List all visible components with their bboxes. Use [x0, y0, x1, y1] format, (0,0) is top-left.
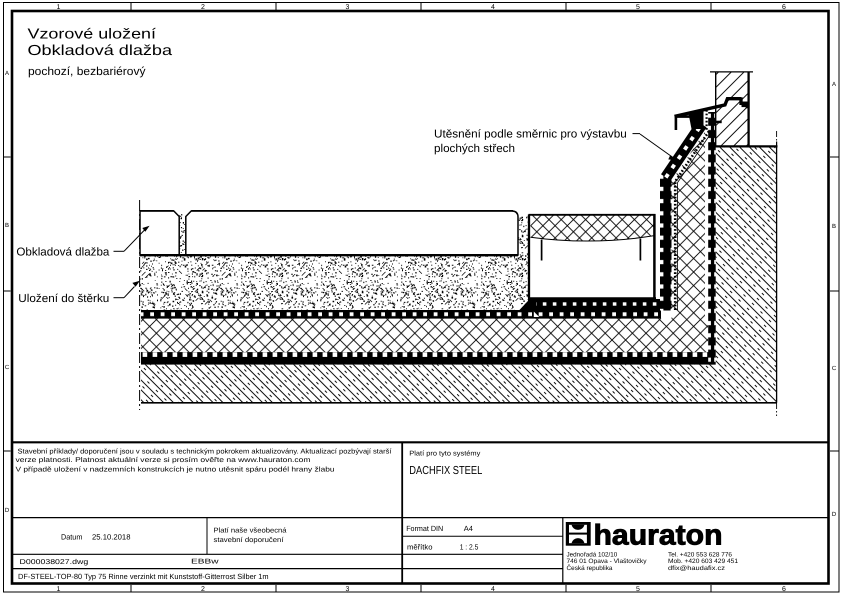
svg-text:D: D — [832, 511, 837, 518]
svg-text:5: 5 — [636, 4, 640, 11]
svg-text:Česká republika: Česká republika — [567, 564, 614, 572]
svg-text:25.10.2018: 25.10.2018 — [92, 533, 131, 542]
svg-text:Obkladová dlažba: Obkladová dlažba — [16, 246, 110, 258]
svg-text:hauraton: hauraton — [594, 520, 723, 552]
svg-text:3: 3 — [346, 4, 350, 11]
svg-text:1: 1 — [57, 4, 61, 11]
svg-text:6: 6 — [782, 4, 786, 11]
svg-text:stavební doporučení: stavební doporučení — [214, 536, 284, 544]
svg-text:1 : 2.5: 1 : 2.5 — [460, 543, 479, 552]
svg-text:plochých střech: plochých střech — [434, 143, 515, 155]
svg-text:B: B — [5, 222, 9, 229]
svg-text:měřítko: měřítko — [407, 542, 433, 551]
svg-text:Utěsnění podle směrnic pro výs: Utěsnění podle směrnic pro výstavbu — [434, 129, 627, 141]
svg-text:Vzorové uložení: Vzorové uložení — [28, 27, 157, 43]
svg-text:Format DIN: Format DIN — [406, 524, 443, 533]
svg-text:pochozí, bezbariérový: pochozí, bezbariérový — [28, 66, 146, 78]
svg-text:Platí naše všeobecná: Platí naše všeobecná — [214, 527, 287, 535]
svg-text:2: 2 — [201, 586, 205, 593]
svg-text:4: 4 — [491, 586, 495, 593]
svg-text:A: A — [832, 81, 836, 88]
svg-text:6: 6 — [782, 586, 786, 593]
svg-text:Obkladová dlažba: Obkladová dlažba — [28, 43, 174, 59]
svg-text:C: C — [832, 365, 837, 372]
svg-text:DACHFIX STEEL: DACHFIX STEEL — [409, 464, 482, 477]
svg-text:C: C — [5, 364, 10, 371]
svg-text:2: 2 — [201, 4, 205, 11]
svg-text:DF-STEEL-TOP-80 Typ 75 Rinne v: DF-STEEL-TOP-80 Typ 75 Rinne verzinkt mi… — [18, 572, 269, 581]
svg-text:V případě uložení v nadzemních: V případě uložení v nadzemních konstrukc… — [16, 466, 335, 474]
svg-text:4: 4 — [491, 4, 495, 11]
svg-text:Mob. +420 603 429 451: Mob. +420 603 429 451 — [668, 558, 739, 565]
svg-text:Datum: Datum — [61, 533, 82, 542]
svg-text:dfix@haudafix.cz: dfix@haudafix.cz — [668, 565, 725, 572]
svg-text:3: 3 — [346, 586, 350, 593]
svg-text:EBBw: EBBw — [191, 558, 220, 565]
svg-text:B: B — [832, 223, 836, 230]
svg-text:1: 1 — [57, 586, 61, 593]
svg-text:A: A — [5, 70, 9, 77]
svg-text:A4: A4 — [464, 524, 473, 533]
svg-text:746 01 Opava - Vlaštovičky: 746 01 Opava - Vlaštovičky — [567, 558, 648, 565]
svg-text:verze platnosti. Platnost aktu: verze platnosti. Platnost aktuální verze… — [16, 456, 311, 464]
svg-text:5: 5 — [636, 586, 640, 593]
svg-text:D: D — [5, 507, 10, 514]
svg-text:D000038027.dwg: D000038027.dwg — [20, 558, 89, 566]
svg-text:Platí pro tyto systémy: Platí pro tyto systémy — [409, 450, 481, 458]
svg-text:Uložení do štěrku: Uložení do štěrku — [18, 293, 109, 305]
svg-text:Stavební příklady/ doporučení: Stavební příklady/ doporučení jsou v sou… — [18, 447, 392, 455]
